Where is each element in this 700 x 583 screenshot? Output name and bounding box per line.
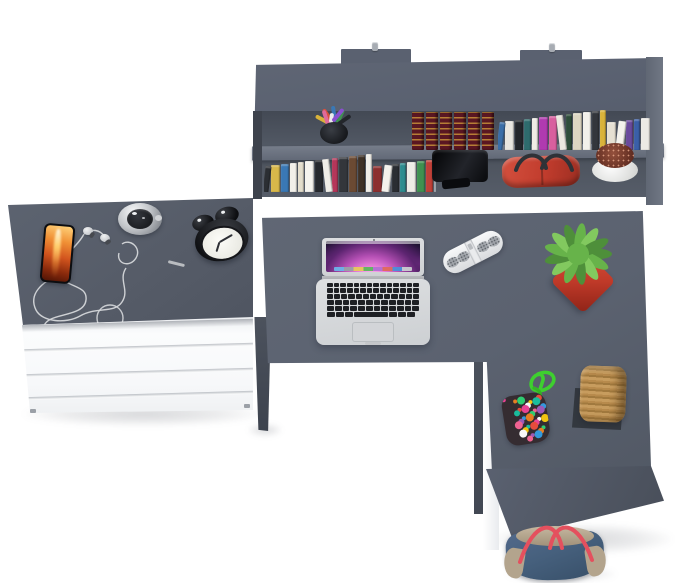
dried-plant-foliage — [596, 143, 634, 168]
key — [343, 300, 350, 305]
pompom — [541, 413, 550, 422]
book-spine — [381, 165, 392, 192]
key — [384, 294, 390, 299]
key — [358, 300, 365, 305]
book-spine — [339, 157, 348, 192]
tote-bag-straps — [498, 512, 616, 583]
book-spine — [358, 155, 365, 192]
key — [360, 283, 366, 287]
pompom — [513, 399, 518, 404]
key — [407, 312, 415, 317]
key — [398, 312, 406, 317]
antique-volume — [454, 112, 466, 150]
bottom-shelf-books — [264, 152, 436, 192]
book-spine — [400, 163, 406, 192]
succulent-leaves — [534, 210, 628, 324]
book-spine — [271, 165, 280, 192]
top-shelf-books — [498, 110, 656, 150]
potted-plant — [534, 210, 628, 324]
laptop — [316, 234, 432, 346]
key — [340, 288, 346, 293]
laptop-lid-notch — [365, 342, 381, 345]
keyboard-row — [327, 300, 419, 305]
key — [350, 300, 357, 305]
book-spine — [392, 164, 399, 192]
book-spine — [281, 164, 289, 192]
key — [347, 288, 353, 293]
key — [387, 283, 393, 287]
key — [380, 283, 386, 287]
key — [335, 300, 342, 305]
key — [391, 294, 397, 299]
pouch-body — [500, 391, 551, 447]
key — [366, 300, 373, 305]
pencil-cup — [312, 106, 354, 148]
key — [345, 312, 353, 317]
key — [347, 283, 353, 287]
key — [405, 300, 412, 305]
key — [393, 288, 399, 293]
key — [393, 283, 399, 287]
key — [412, 306, 419, 311]
key — [327, 306, 334, 311]
keyboard-row — [327, 294, 419, 299]
dresser-foot — [244, 404, 250, 408]
drawer-seam — [22, 368, 253, 377]
keyboard-row — [327, 306, 419, 311]
book-spine — [641, 118, 650, 150]
book-spine — [373, 166, 382, 192]
cable-jack — [168, 260, 185, 267]
book-spine — [298, 162, 304, 192]
laptop-keyboard — [327, 283, 419, 317]
key — [400, 283, 406, 287]
key — [387, 288, 393, 293]
key — [327, 283, 333, 287]
key — [413, 283, 419, 287]
key — [336, 312, 344, 317]
rope-basket — [570, 362, 630, 432]
smartphone-screen — [42, 225, 74, 282]
hutch-left-side — [253, 111, 262, 199]
key — [389, 312, 397, 317]
key — [334, 283, 340, 287]
basket-body — [579, 365, 627, 423]
pompom-pouch — [498, 366, 564, 446]
antique-book-set — [412, 111, 496, 150]
book-spine — [290, 163, 297, 192]
pompom — [502, 398, 507, 403]
antique-volume — [482, 112, 494, 150]
key — [397, 300, 404, 305]
key — [354, 283, 360, 287]
laptop-trackpad — [352, 322, 394, 342]
key — [413, 294, 419, 299]
watch-glint — [132, 212, 137, 215]
book-spine — [573, 113, 582, 150]
wallpaper-flame — [51, 229, 62, 278]
key — [327, 294, 333, 299]
key — [389, 300, 396, 305]
key — [350, 306, 357, 311]
laptop-display — [326, 241, 420, 272]
key — [358, 306, 365, 311]
book-spine — [583, 112, 591, 150]
black-desk-lamp — [432, 150, 488, 182]
smartphone — [39, 223, 75, 284]
key — [335, 306, 342, 311]
key — [360, 288, 366, 293]
book-spine — [634, 119, 640, 150]
key — [397, 306, 404, 311]
key — [356, 294, 362, 299]
key — [374, 306, 381, 311]
key — [407, 283, 413, 287]
pocket-watch-dial — [127, 209, 153, 229]
pompom — [527, 435, 534, 442]
webcam-icon — [373, 239, 375, 241]
book-spine — [407, 162, 416, 192]
key — [367, 288, 373, 293]
cup — [320, 122, 348, 144]
book-spine — [592, 111, 599, 150]
antique-volume — [468, 112, 480, 150]
key — [412, 300, 419, 305]
key — [413, 288, 419, 293]
menubar — [326, 241, 420, 244]
product-render-scene: Top-down 3D render of a gray and white c… — [0, 0, 700, 583]
key — [380, 288, 386, 293]
key — [373, 283, 379, 287]
tote-bag — [498, 512, 616, 583]
key — [399, 294, 405, 299]
key — [340, 283, 346, 287]
book-spine — [417, 161, 425, 192]
antique-volume — [412, 112, 424, 150]
antique-volume — [440, 112, 452, 150]
key — [366, 306, 373, 311]
key — [381, 300, 388, 305]
key — [381, 306, 388, 311]
wall-hook-icon — [372, 42, 378, 51]
pompom — [514, 410, 521, 417]
book-spine — [349, 156, 357, 192]
key — [373, 288, 379, 293]
pompom — [536, 405, 545, 414]
key — [327, 312, 335, 317]
key — [343, 306, 350, 311]
key — [377, 294, 383, 299]
key — [370, 294, 376, 299]
book-spine — [366, 154, 372, 192]
key — [405, 306, 412, 311]
key — [406, 294, 412, 299]
key — [348, 294, 354, 299]
key — [354, 288, 360, 293]
drawer-seam — [22, 343, 253, 352]
key — [367, 283, 373, 287]
dresser-foot — [30, 409, 36, 413]
minute-hand — [219, 234, 233, 243]
dock-icons — [334, 267, 413, 271]
drawer-fronts — [22, 316, 253, 413]
key — [400, 288, 406, 293]
watch-crown — [155, 215, 162, 221]
key — [327, 300, 334, 305]
spacebar-key — [354, 312, 388, 317]
key — [374, 300, 381, 305]
leaf-center — [567, 243, 589, 265]
key — [327, 288, 333, 293]
laptop-screen — [322, 238, 424, 276]
keyboard-row — [327, 312, 419, 317]
wall-hook-icon — [549, 43, 555, 52]
key — [334, 294, 340, 299]
hour-hand — [216, 242, 221, 252]
pompom — [534, 430, 543, 439]
pocket-watch — [118, 203, 162, 235]
keyboard-row — [327, 283, 419, 287]
keyboard-row — [327, 288, 419, 293]
book-spine — [332, 158, 338, 192]
antique-volume — [426, 112, 438, 150]
book-spine — [566, 114, 572, 150]
handbag-handles — [500, 146, 584, 190]
key — [389, 306, 396, 311]
drawer-seam — [22, 391, 253, 400]
key — [341, 294, 347, 299]
key — [363, 294, 369, 299]
key — [334, 288, 340, 293]
book-spine — [305, 161, 314, 192]
key — [407, 288, 413, 293]
watch-glint — [142, 217, 145, 219]
